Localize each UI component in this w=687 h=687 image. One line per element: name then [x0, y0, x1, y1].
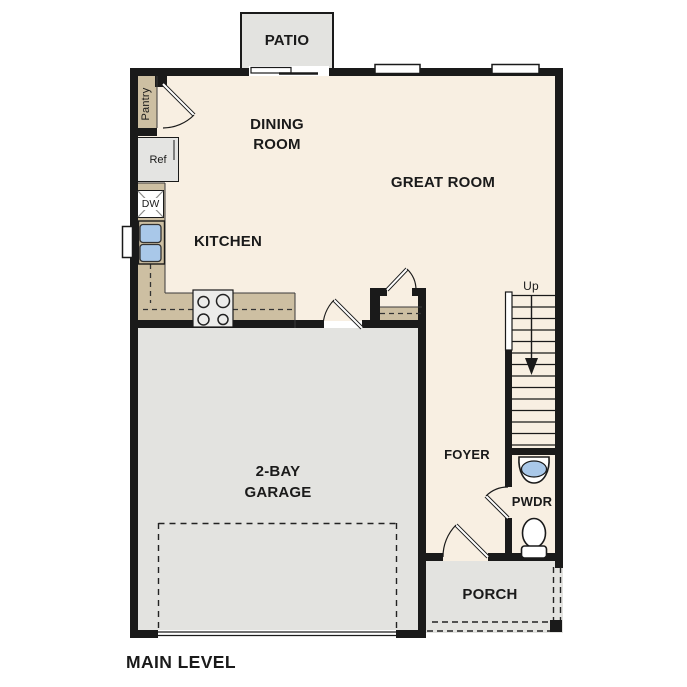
floor-plan: PATIO Ref DW [0, 0, 687, 687]
great-room-label: GREAT ROOM [363, 173, 523, 193]
powder-room-label: PWDR [503, 494, 561, 509]
garage-door-icon [158, 630, 396, 638]
wall [130, 320, 324, 328]
dishwasher-label: DW [141, 198, 161, 210]
patio-label: PATIO [265, 31, 310, 51]
wall [505, 448, 563, 455]
stairs-up-label: Up [517, 279, 545, 293]
wall [130, 68, 138, 638]
patio-area: PATIO [240, 12, 334, 70]
garage-label: 2-BAY GARAGE [227, 461, 329, 503]
wall [418, 320, 426, 633]
wall [396, 630, 426, 638]
wall [418, 288, 426, 328]
dining-room-label: DINING ROOM [227, 115, 327, 155]
plan-title: MAIN LEVEL [126, 652, 236, 673]
porch-label: PORCH [440, 585, 540, 605]
refrigerator-label: Ref [149, 154, 166, 166]
wall [370, 288, 387, 296]
foyer-corridor-area [426, 320, 555, 561]
wall [155, 76, 167, 87]
foyer-label: FOYER [427, 447, 507, 462]
wall [555, 68, 563, 568]
kitchen-label: KITCHEN [168, 232, 288, 252]
dishwasher: DW [137, 190, 164, 218]
wall [130, 68, 563, 76]
wall [488, 553, 563, 561]
closet-shelf [380, 307, 422, 321]
main-floor-area [138, 76, 555, 321]
wall [505, 518, 512, 561]
wall [130, 630, 158, 638]
wall [418, 553, 443, 561]
refrigerator: Ref [137, 137, 179, 182]
wall [505, 350, 512, 448]
pantry-label: Pantry [140, 78, 154, 130]
